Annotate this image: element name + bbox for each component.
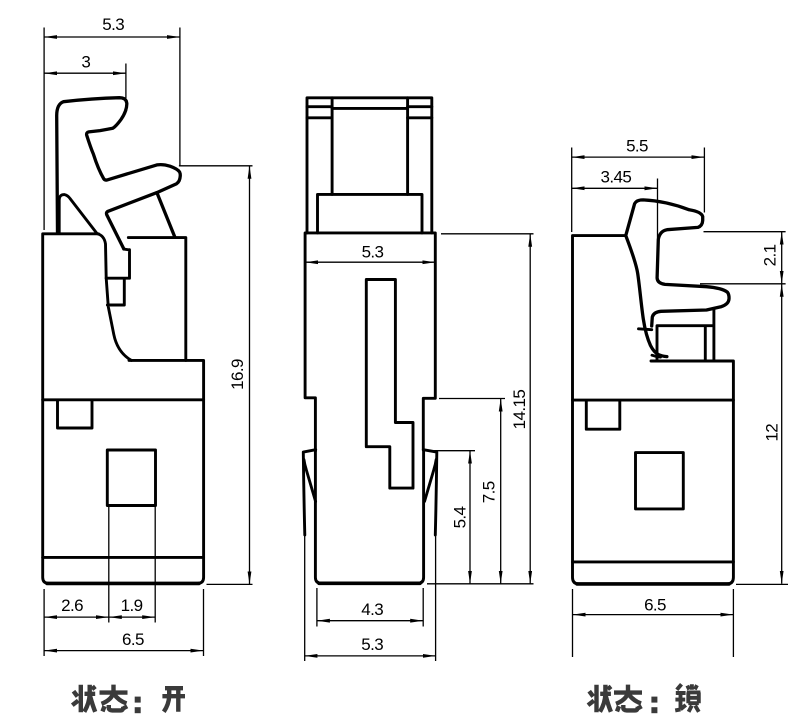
svg-text:5.3: 5.3 bbox=[362, 243, 384, 262]
svg-text:12: 12 bbox=[762, 424, 781, 442]
svg-text:16.9: 16.9 bbox=[228, 359, 247, 390]
svg-text:6.5: 6.5 bbox=[644, 596, 666, 615]
svg-text:1.9: 1.9 bbox=[121, 596, 143, 615]
svg-text:4.3: 4.3 bbox=[361, 600, 383, 619]
svg-text:3: 3 bbox=[81, 52, 90, 71]
svg-text:5.5: 5.5 bbox=[626, 137, 648, 156]
svg-text:5.3: 5.3 bbox=[102, 15, 124, 34]
svg-text:14.15: 14.15 bbox=[510, 390, 529, 430]
svg-text:2.6: 2.6 bbox=[61, 596, 83, 615]
svg-text:3.45: 3.45 bbox=[601, 168, 632, 187]
svg-text:2.1: 2.1 bbox=[761, 244, 780, 266]
svg-text:6.5: 6.5 bbox=[122, 630, 144, 649]
svg-text:5.4: 5.4 bbox=[450, 506, 469, 528]
svg-text:5.3: 5.3 bbox=[361, 635, 383, 654]
svg-text:7.5: 7.5 bbox=[480, 481, 499, 503]
